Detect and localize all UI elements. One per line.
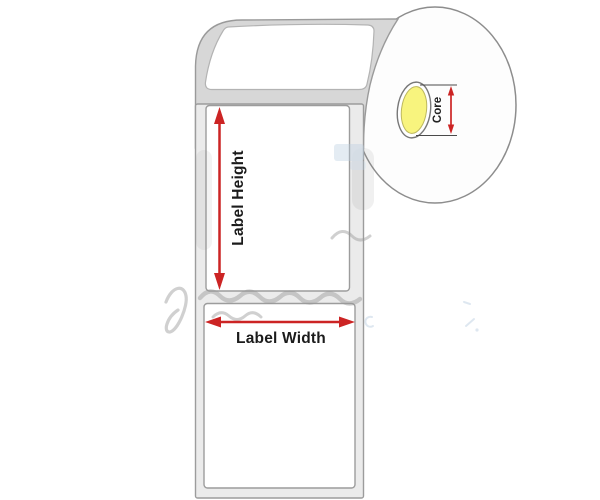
label-width-text: Label Width	[236, 330, 326, 347]
watermark-smudge	[196, 150, 212, 250]
watermark-blue-mark	[334, 144, 364, 161]
diagram-canvas: Label Height Label Width Core	[0, 0, 600, 500]
label-roll-diagram: Label Height Label Width Core	[0, 0, 600, 500]
core-text: Core	[432, 97, 444, 123]
label-1	[206, 106, 350, 292]
watermark-blue-mark	[350, 161, 366, 170]
label-height-text: Label Height	[230, 150, 247, 245]
watermark-blue-mark	[475, 328, 478, 331]
roll-surface-label	[205, 24, 374, 89]
